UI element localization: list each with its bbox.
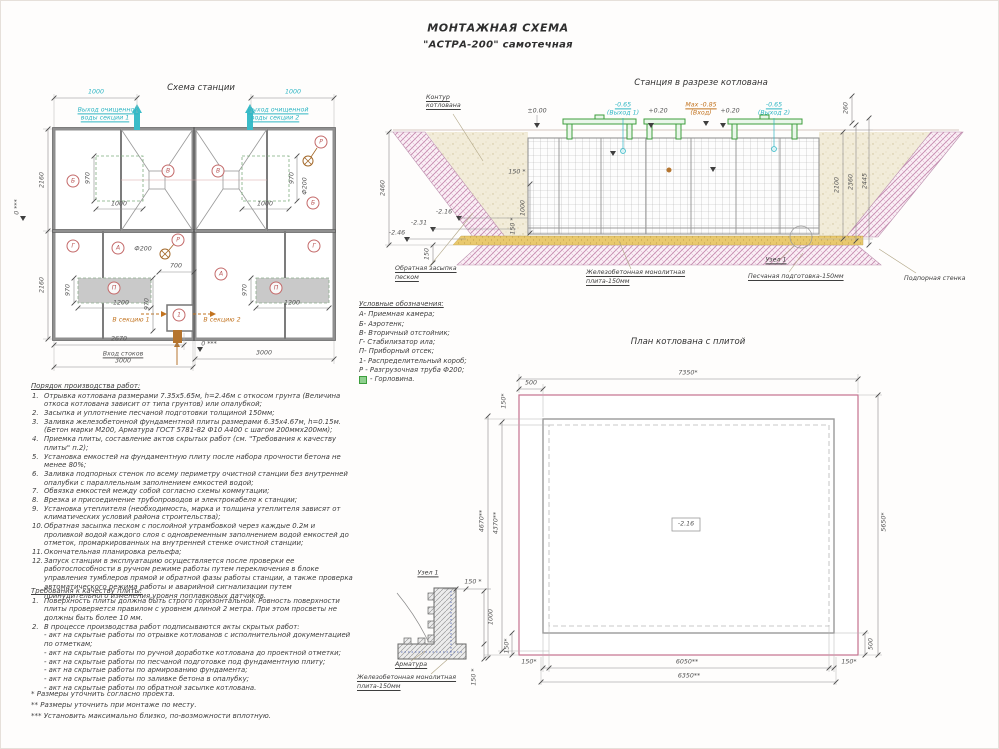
work-order-item: Обвязка емкостей между собой согласно сх… — [44, 487, 269, 495]
tag-discharge-pipe: Р — [315, 136, 328, 149]
dim-label: 700 — [170, 262, 182, 269]
quality-item: Поверхность плиты должна быть строго гор… — [44, 597, 340, 622]
act-item: - акт на скрытые работы по заливке бетон… — [31, 675, 354, 684]
dim-label: 6350** — [678, 672, 700, 679]
dim-label: 2460 — [379, 180, 386, 196]
dim-label: 1000 — [257, 200, 273, 207]
dim-label: 2670 — [111, 335, 127, 342]
dim-label: 2100 — [833, 177, 840, 193]
dim-label: 1200 — [284, 299, 300, 306]
dim-label: 3000 — [256, 349, 272, 356]
dim-label: 4370** — [492, 512, 499, 534]
zero-label: 0 *** — [201, 340, 216, 347]
tag-aerotank: Б — [307, 197, 320, 210]
work-order-title: Порядок производства работ: — [31, 382, 354, 391]
tag-discharge-pipe: Р — [172, 234, 185, 247]
outlet2-label: Выход очищенной — [248, 106, 309, 113]
work-order-item: Заливка подпорных стенок по всему периме… — [44, 470, 348, 487]
dim-label: Ф200 — [134, 245, 151, 252]
level-label: +0.20 — [720, 107, 739, 114]
legend-item: Б- Аэротенк; — [359, 320, 499, 329]
work-order-item: Обратная засыпка песком с послойной утра… — [44, 522, 349, 547]
legend-item: - Горловина. — [370, 375, 415, 384]
legend-item: 1- Распределительный короб; — [359, 357, 499, 366]
work-order-item: Установка емкостей на фундаментную плиту… — [44, 453, 341, 470]
work-order-item: Врезка и присоединение трубопроводов и э… — [44, 496, 297, 504]
legend-item: Г- Стабилизатор ила; — [359, 338, 499, 347]
level-label: (Вход) — [690, 109, 711, 116]
page-subtitle: "АСТРА-200" самотечная — [423, 39, 573, 51]
level-label: -0.65 — [615, 101, 631, 108]
dim-label: 4670** — [478, 510, 485, 532]
work-order-item: Приемка плиты, составление актов скрытых… — [44, 435, 336, 452]
level-label: -2.46 — [389, 229, 405, 236]
tag-receiving-chamber: А — [215, 268, 228, 281]
legend-title: Условные обозначения: — [359, 300, 499, 309]
level-label: -2.16 — [436, 208, 452, 215]
dim-label: 260 — [842, 102, 849, 114]
level-label: -2.31 — [411, 219, 427, 226]
work-order-item: Окончательная планировка рельефа; — [44, 548, 181, 556]
node-title: Узел 1 — [417, 569, 438, 576]
outlet2-label: воды секции 2 — [251, 114, 300, 121]
act-item: - акт на скрытые работы по ручной дорабо… — [31, 649, 354, 658]
work-order: Порядок производства работ: 1.Отрывка ко… — [31, 382, 354, 600]
outlet1-label: Выход очищенной — [78, 106, 139, 113]
contour-label: котлована — [426, 102, 461, 109]
work-order-item: Заливка железобетонной фундаментной плит… — [44, 418, 341, 435]
dim-label: 1000 — [285, 88, 301, 95]
drawing-sheet: МОНТАЖНАЯ СХЕМА "АСТРА-200" самотечная С… — [0, 0, 999, 749]
outlet1-label: воды секции 1 — [81, 114, 130, 121]
work-order-item: Отрывка котлована размерами 7.35х5.65м, … — [44, 392, 340, 409]
level-label: Max -0.85 — [685, 101, 716, 108]
footnote: * Размеры уточнить согласно проекта. — [31, 690, 175, 698]
dim-label: 3000 — [115, 357, 131, 364]
node-ref-label: Узел 1 — [765, 256, 786, 263]
dim-label: 970 — [64, 284, 71, 296]
legend: Условные обозначения: А- Приемная камера… — [359, 300, 499, 385]
slab-label: Железобетонная монолитная — [586, 269, 685, 276]
tag-receiving-chamber: А — [112, 242, 125, 255]
dim-label: 1000 — [519, 200, 526, 216]
footnote: ** Размеры уточнить при монтаже по месту… — [31, 701, 197, 709]
pit-plan-title: План котлована с плитой — [631, 338, 745, 348]
level-label: ±0.00 — [527, 107, 546, 114]
dim-label: 150 * — [470, 668, 477, 685]
legend-item: П- Приборный отсек; — [359, 347, 499, 356]
tag-instrument-bay: П — [270, 282, 283, 295]
dim-label: 1000 — [111, 200, 127, 207]
dim-label: 500 — [867, 638, 874, 650]
to-section2-label: В секцию 2 — [203, 316, 240, 323]
act-item: - акт на скрытые работы по отрывке котло… — [31, 631, 354, 648]
dim-label: 150 * — [508, 168, 525, 175]
dim-label: 1000 — [487, 609, 494, 625]
dim-label: 970 — [288, 172, 295, 184]
elevation-label: -2.16 — [678, 520, 694, 527]
dim-label: 150* — [521, 658, 536, 665]
tag-clarifier: В — [212, 165, 225, 178]
dim-label: 5650* — [880, 512, 887, 531]
quality-requirements: Требования к качеству плиты: 1.Поверхнос… — [31, 587, 354, 692]
level-label: (Выход 1) — [607, 109, 639, 116]
tag-sludge-stabilizer: Г — [67, 240, 80, 253]
dim-label: 2160 — [38, 172, 45, 188]
section-view-drawing — [393, 114, 963, 273]
page-title: МОНТАЖНАЯ СХЕМА — [427, 23, 569, 36]
quality-item: В процессе производства работ подписываю… — [44, 623, 300, 631]
dim-label: 1200 — [113, 299, 129, 306]
node-slab-label: плита-150мм — [357, 683, 401, 690]
dim-label: 500 — [525, 379, 537, 386]
legend-item: А- Приемная камера; — [359, 310, 499, 319]
level-label: -0.65 — [766, 101, 782, 108]
legend-item: В- Вторичный отстойник; — [359, 329, 499, 338]
retaining-wall-label: Подпорная стенка — [904, 275, 965, 282]
to-section1-label: В секцию 1 — [112, 316, 149, 323]
section-view-title: Станция в разрезе котлована — [634, 79, 768, 89]
backfill-label: Обратная засыпка — [395, 265, 457, 272]
backfill-label: песком — [395, 274, 419, 281]
dim-label: 150* — [841, 658, 856, 665]
dim-label: 6050** — [676, 658, 698, 665]
dim-label: 0 *** — [13, 199, 20, 214]
dim-label: 2360 — [847, 174, 854, 190]
dim-label: Ф200 — [301, 177, 308, 194]
work-order-item: Установка утеплителя (необходимость, мар… — [44, 505, 340, 522]
dim-label: 2160 — [38, 277, 45, 293]
dim-label: 150 — [423, 248, 430, 260]
dim-label: 970 — [241, 284, 248, 296]
tag-distribution-box: 1 — [173, 309, 186, 322]
contour-label: Контур — [426, 94, 450, 101]
act-item: - акт на скрытые работы по песчаной подг… — [31, 658, 354, 667]
station-plan-title: Схема станции — [167, 84, 235, 94]
tag-sludge-stabilizer: Г — [308, 240, 321, 253]
level-label: (Выход 2) — [758, 109, 790, 116]
tag-instrument-bay: П — [108, 282, 121, 295]
dim-label: 970 — [84, 172, 91, 184]
footnote: *** Установить максимально близко, по-во… — [31, 712, 271, 720]
dim-label: 150* — [500, 393, 507, 408]
dim-label: 150* — [503, 638, 510, 653]
dim-label: 150 * — [509, 217, 516, 234]
tag-aerotank: Б — [67, 175, 80, 188]
dim-label: 150 * — [464, 578, 481, 585]
legend-item: Р - Разгрузочная труба Ф200; — [359, 366, 499, 375]
tag-clarifier: В — [162, 165, 175, 178]
rebar-label: Арматура — [395, 661, 427, 668]
dim-label: 7350* — [678, 369, 697, 376]
work-order-item: Засыпка и уплотнение песчаной подготовки… — [44, 409, 275, 417]
quality-title: Требования к качеству плиты: — [31, 587, 354, 596]
dim-label: 970 — [143, 298, 150, 310]
node-slab-label: Железобетонная монолитная — [357, 674, 456, 681]
act-item: - акт на скрытые работы по армированию ф… — [31, 666, 354, 675]
neck-swatch-icon — [359, 376, 367, 384]
dim-label: 1000 — [88, 88, 104, 95]
dim-label: 2445 — [861, 173, 868, 189]
sand-label: Песчаная подготовка-150мм — [748, 273, 844, 280]
level-label: +0.20 — [648, 107, 667, 114]
slab-label: плита-150мм — [586, 278, 630, 285]
